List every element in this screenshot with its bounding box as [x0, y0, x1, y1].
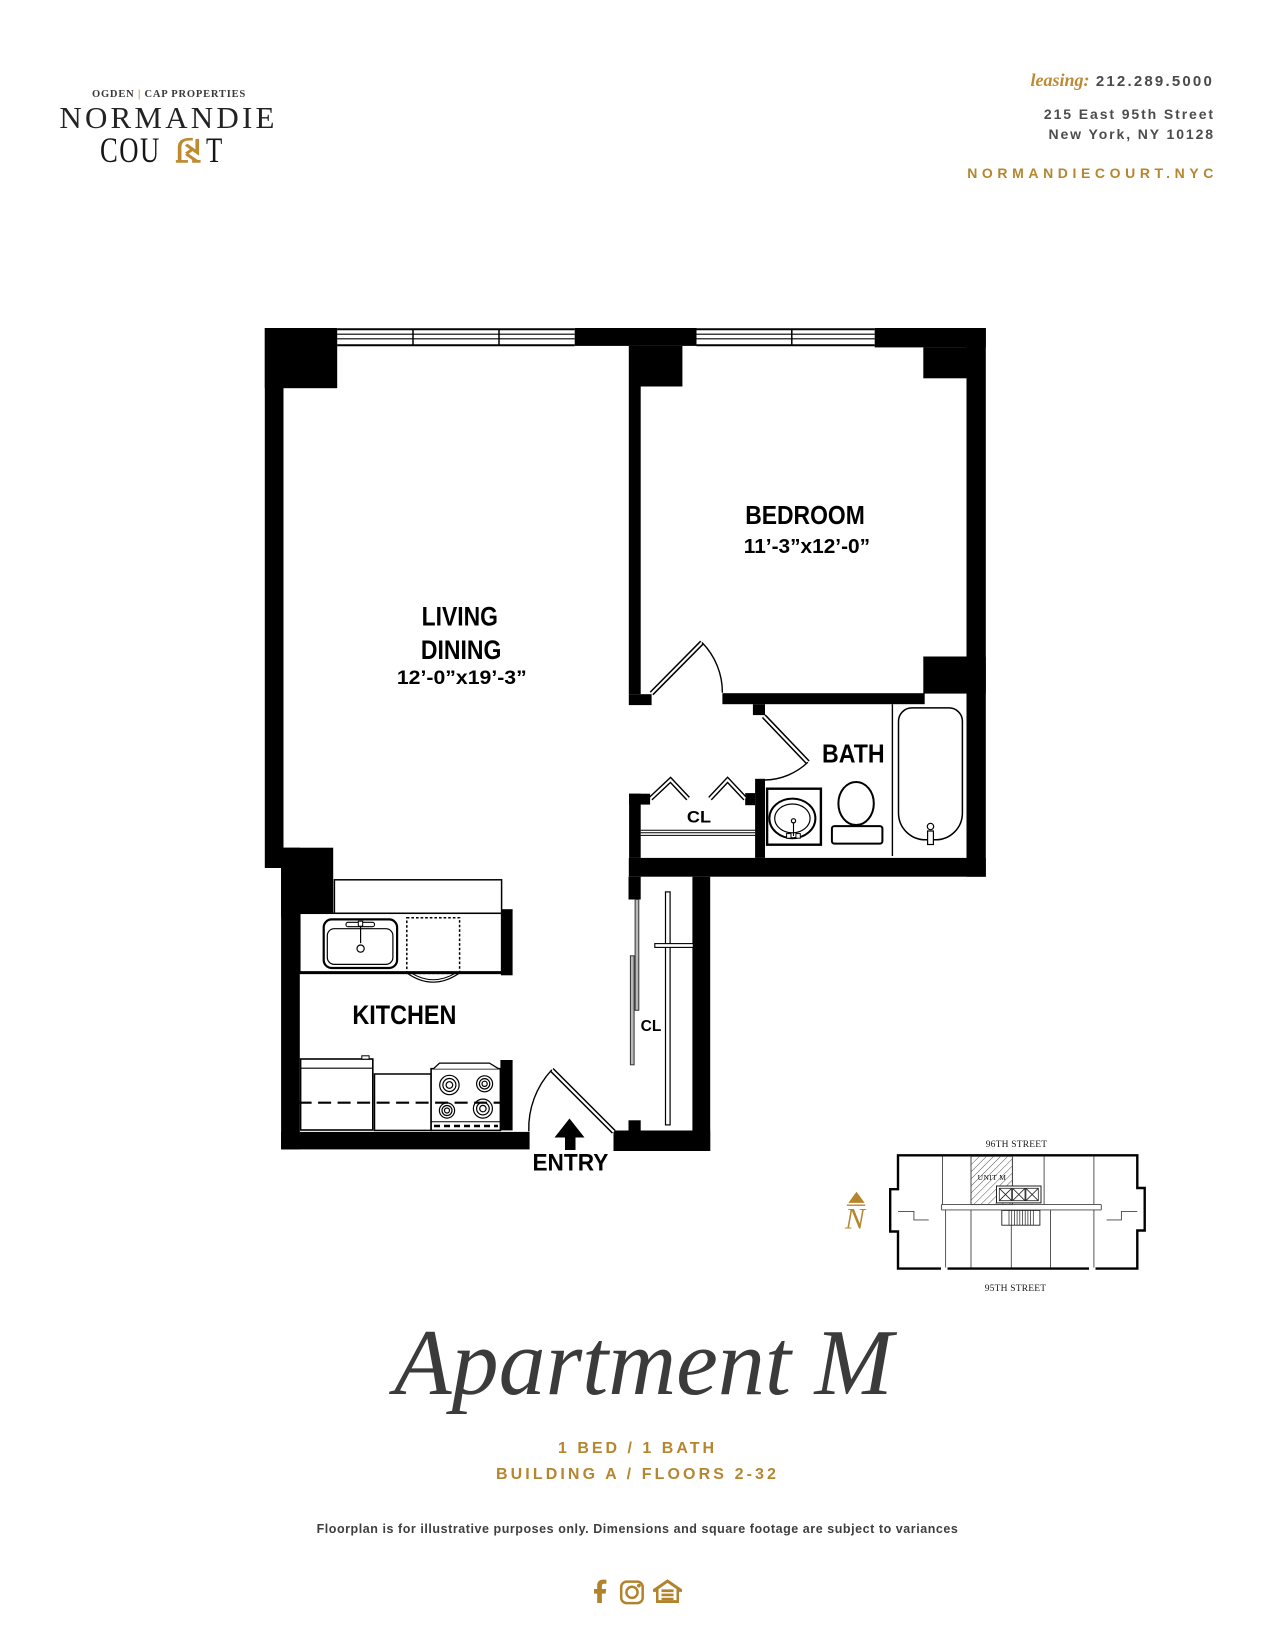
svg-text:12’-0”x19’-3”: 12’-0”x19’-3”	[397, 667, 527, 689]
svg-text:KITCHEN: KITCHEN	[352, 1000, 456, 1030]
svg-text:BEDROOM: BEDROOM	[745, 502, 865, 530]
svg-text:N: N	[844, 1202, 867, 1235]
svg-text:LIVING: LIVING	[422, 601, 498, 631]
svg-text:96TH STREET: 96TH STREET	[986, 1140, 1048, 1150]
svg-text:ENTRY: ENTRY	[532, 1150, 608, 1177]
svg-text:DINING: DINING	[421, 635, 502, 665]
svg-text:95TH STREET: 95TH STREET	[985, 1284, 1047, 1294]
svg-text:CL: CL	[687, 808, 711, 827]
svg-text:11’-3”x12’-0”: 11’-3”x12’-0”	[744, 536, 870, 558]
svg-text:UNIT M: UNIT M	[978, 1173, 1007, 1182]
svg-text:CL: CL	[641, 1018, 662, 1035]
svg-text:BATH: BATH	[822, 738, 885, 768]
